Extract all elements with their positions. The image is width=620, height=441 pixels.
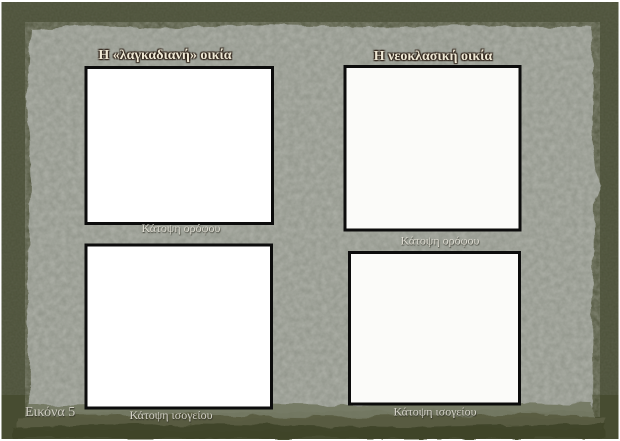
svg-text:Η νεοκλασική οικία: Η νεοκλασική οικία	[374, 49, 493, 64]
svg-text:Εικόνα 5: Εικόνα 5	[25, 405, 75, 420]
svg-text:Κάτοψη ισογείου: Κάτοψη ισογείου	[393, 405, 476, 419]
svg-text:Κάτοψη ορόφου: Κάτοψη ορόφου	[142, 221, 221, 235]
svg-text:Κάτοψη ισογείου: Κάτοψη ισογείου	[129, 408, 212, 422]
svg-text:Κάτοψη ορόφου: Κάτοψη ορόφου	[401, 234, 480, 248]
svg-text:Η «λαγκαδιανή» οικία: Η «λαγκαδιανή» οικία	[98, 48, 231, 63]
